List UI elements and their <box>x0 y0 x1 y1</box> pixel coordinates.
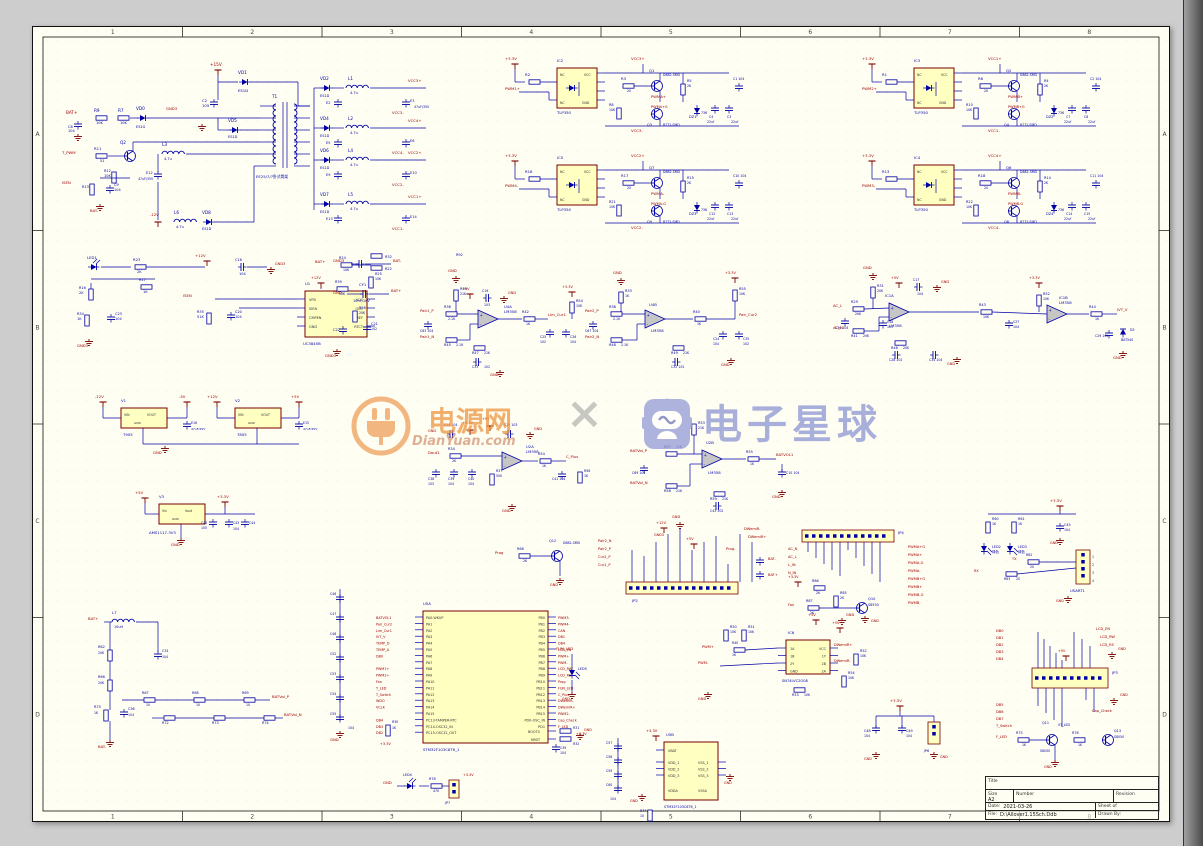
svg-text:R5: R5 <box>687 79 692 83</box>
svg-text:PA8: PA8 <box>426 667 432 671</box>
svg-text:C4: C4 <box>709 115 713 119</box>
svg-text:PWMB+G: PWMB+G <box>908 577 925 581</box>
svg-text:L2: L2 <box>348 116 353 121</box>
svg-text:1A: 1A <box>790 647 795 651</box>
svg-text:Cap_Check: Cap_Check <box>558 718 577 722</box>
svg-text:VD1: VD1 <box>238 70 247 75</box>
svg-text:L4: L4 <box>348 148 353 153</box>
svg-text:22uf: 22uf <box>707 217 715 221</box>
svg-text:PWMB+: PWMB+ <box>1008 94 1023 99</box>
svg-text:VFB: VFB <box>309 298 316 302</box>
svg-text:10K: 10K <box>966 205 973 209</box>
date-label: Date: <box>988 804 1000 809</box>
svg-text:VDDA: VDDA <box>668 789 678 793</box>
svg-text:EE25/7/7卧式骨架: EE25/7/7卧式骨架 <box>256 174 288 179</box>
svg-text:2K: 2K <box>452 459 457 463</box>
svg-text:C19: C19 <box>482 289 488 293</box>
svg-text:20K: 20K <box>359 311 366 315</box>
svg-text:PWM-: PWM- <box>558 661 568 665</box>
svg-text:VCC4-: VCC4- <box>988 225 1000 230</box>
svg-text:1K: 1K <box>1022 743 1027 747</box>
svg-text:VBAT: VBAT <box>668 749 678 753</box>
svg-text:NC: NC <box>917 198 922 202</box>
svg-text:TLP350: TLP350 <box>556 207 572 212</box>
svg-text:22uf: 22uf <box>731 217 739 221</box>
svg-text:VCC3-: VCC3- <box>631 128 643 133</box>
svg-text:LED3: LED3 <box>1018 545 1027 549</box>
svg-text:10K: 10K <box>96 121 103 125</box>
svg-text:GND: GND <box>172 517 180 521</box>
schematic-sheet[interactable]: 1122334455667788AABBCCDD+15VC2105VD1ES1D… <box>32 26 1170 822</box>
svg-text:PWM1+: PWM1+ <box>505 86 520 91</box>
svg-text:C23: C23 <box>115 312 122 316</box>
svg-text:10K: 10K <box>848 676 855 680</box>
svg-text:22uf: 22uf <box>1088 120 1096 124</box>
svg-text:ES1D: ES1D <box>228 135 238 139</box>
svg-text:GND: GND <box>309 325 317 329</box>
svg-text:C31: C31 <box>162 649 169 653</box>
svg-text:102: 102 <box>743 342 749 346</box>
svg-text:D: D <box>35 711 40 718</box>
svg-text:VCC2+: VCC2+ <box>631 153 645 158</box>
svg-text:1K: 1K <box>697 322 702 326</box>
svg-text:2B: 2B <box>822 662 827 666</box>
svg-text:R11: R11 <box>94 146 102 151</box>
svg-text:E2: E2 <box>326 101 330 105</box>
svg-text:R66: R66 <box>517 547 524 551</box>
svg-text:10: 10 <box>246 703 250 707</box>
svg-text:TLP350: TLP350 <box>913 207 929 212</box>
svg-text:R54: R54 <box>576 299 584 303</box>
svg-text:7: 7 <box>948 814 952 821</box>
svg-text:103: 103 <box>484 303 490 307</box>
svg-text:C10 104: C10 104 <box>786 471 799 475</box>
svg-text:PWMA+: PWMA+ <box>908 553 922 557</box>
svg-text:CMPEN: CMPEN <box>309 316 322 320</box>
svg-text:R23: R23 <box>133 257 141 262</box>
svg-text:736: 736 <box>1058 208 1064 212</box>
svg-text:BAT+: BAT+ <box>315 259 325 264</box>
svg-text:PD0-OSC_IN: PD0-OSC_IN <box>524 718 545 722</box>
svg-text:GND: GND <box>383 780 392 785</box>
svg-text:BATVOL1: BATVOL1 <box>776 452 794 457</box>
svg-text:+3.3V: +3.3V <box>862 56 874 61</box>
svg-text:7905: 7905 <box>123 432 133 437</box>
svg-text:BAT+: BAT+ <box>768 573 778 577</box>
title-block: Title SizeA2 Number Revision Date:2021-0… <box>985 776 1159 820</box>
svg-text:PC14-OSC32_IN: PC14-OSC32_IN <box>426 725 453 729</box>
svg-text:NC: NC <box>917 73 922 77</box>
svg-text:Pair2_N: Pair2_N <box>585 334 599 339</box>
svg-text:+3.3V: +3.3V <box>576 732 587 736</box>
svg-text:R30: R30 <box>392 720 398 724</box>
svg-text:R87: R87 <box>806 599 813 603</box>
svg-text:+3.3V: +3.3V <box>380 742 391 746</box>
svg-text:R68: R68 <box>192 691 199 695</box>
svg-text:R42: R42 <box>522 310 529 314</box>
svg-text:PA5: PA5 <box>426 648 432 652</box>
svg-text:绿色: 绿色 <box>1018 549 1025 554</box>
svg-text:PA1: PA1 <box>426 622 432 626</box>
svg-text:GND: GND <box>550 583 558 587</box>
svg-text:C: C <box>1162 518 1166 525</box>
svg-text:RX: RX <box>974 569 979 573</box>
svg-text:DZ1: DZ1 <box>689 115 696 119</box>
svg-text:VDD_1: VDD_1 <box>668 761 679 765</box>
revision-label: Revision <box>1116 792 1135 797</box>
svg-text:R22: R22 <box>385 267 392 271</box>
svg-text:D882-SMD: D882-SMD <box>663 170 680 174</box>
svg-text:VDD_3: VDD_3 <box>668 774 679 778</box>
svg-text:GND: GND <box>582 198 590 202</box>
svg-text:A: A <box>1162 131 1167 138</box>
svg-text:B772-SMD: B772-SMD <box>663 220 680 224</box>
svg-text:R59: R59 <box>710 497 717 501</box>
svg-text:U4B: U4B <box>649 302 657 307</box>
block-ldo-3v3: +5VV3VinVoutGNDAMS1117-3V3+3.3VC42105C43… <box>135 490 255 547</box>
svg-text:104: 104 <box>115 317 122 321</box>
svg-text:C45: C45 <box>1064 523 1071 527</box>
svg-text:Q1: Q1 <box>649 68 655 73</box>
svg-text:DB3: DB3 <box>376 725 383 729</box>
svg-text:PB9: PB9 <box>538 674 545 678</box>
svg-text:R52: R52 <box>860 649 867 653</box>
svg-text:1K: 1K <box>392 726 397 730</box>
svg-text:10: 10 <box>146 703 150 707</box>
svg-text:VCC3-: VCC3- <box>392 110 404 115</box>
svg-text:Fan: Fan <box>376 680 382 684</box>
svg-text:PWM3-: PWM3- <box>862 183 876 188</box>
block-temp-comparator: GNDC14 104+3.3V+5VC15 103GNDDout1R342KC3… <box>428 417 590 513</box>
svg-text:DWemiR+: DWemiR+ <box>834 643 852 647</box>
svg-text:22uf: 22uf <box>731 120 739 124</box>
svg-text:R34: R34 <box>77 312 85 316</box>
svg-text:Vin: Vin <box>162 509 167 513</box>
svg-text:PWM1+: PWM1+ <box>376 667 389 671</box>
svg-text:4: 4 <box>529 814 533 821</box>
svg-text:BAT+: BAT+ <box>88 616 98 621</box>
svg-text:GND: GND <box>846 613 854 617</box>
svg-text:R52: R52 <box>1043 292 1050 296</box>
svg-text:IC2: IC2 <box>557 58 564 63</box>
svg-text:GND: GND <box>562 697 570 701</box>
svg-text:PWMB-: PWMB- <box>1008 191 1022 196</box>
svg-text:4.7u: 4.7u <box>350 163 358 167</box>
svg-text:20K: 20K <box>877 289 884 293</box>
svg-text:R39: R39 <box>335 280 342 284</box>
svg-text:PA2: PA2 <box>426 629 432 633</box>
svg-text:PWM2-: PWM2- <box>558 712 570 716</box>
svg-text:21K: 21K <box>683 351 690 355</box>
svg-text:Cap_Check: Cap_Check <box>1092 709 1113 713</box>
svg-text:C67 104: C67 104 <box>585 329 598 333</box>
svg-text:20K: 20K <box>855 312 862 316</box>
svg-text:S8550: S8550 <box>868 603 879 607</box>
svg-text:PWM4-: PWM4- <box>505 183 519 188</box>
svg-text:10uH: 10uH <box>114 625 123 629</box>
svg-text:V1: V1 <box>121 398 127 403</box>
svg-text:LM358: LM358 <box>504 309 517 314</box>
svg-text:21K: 21K <box>460 292 467 296</box>
svg-text:VCC: VCC <box>584 170 591 174</box>
svg-text:PA11: PA11 <box>426 686 434 690</box>
svg-text:VD2: VD2 <box>320 76 329 81</box>
svg-text:1K: 1K <box>1018 522 1023 526</box>
svg-text:DB2: DB2 <box>996 643 1004 647</box>
svg-text:C63 104: C63 104 <box>420 329 433 333</box>
svg-text:GND: GND <box>1056 599 1064 603</box>
svg-text:C15: C15 <box>1084 212 1090 216</box>
svg-text:GND: GND <box>502 508 511 513</box>
svg-text:R13: R13 <box>82 185 89 189</box>
svg-text:5: 5 <box>669 29 673 36</box>
svg-text:IC4: IC4 <box>914 155 921 160</box>
svg-text:Pair2_P: Pair2_P <box>598 547 612 551</box>
svg-text:JP6: JP6 <box>923 749 929 753</box>
svg-text:E13: E13 <box>326 217 333 221</box>
svg-text:C2 104: C2 104 <box>1090 77 1101 81</box>
svg-text:VSS_1: VSS_1 <box>698 761 708 765</box>
svg-text:Pair1_N: Pair1_N <box>420 334 434 339</box>
svg-text:PA15: PA15 <box>426 712 434 716</box>
svg-text:PB3: PB3 <box>538 635 545 639</box>
svg-text:2: 2 <box>250 814 254 821</box>
svg-text:R77: R77 <box>640 809 646 813</box>
svg-text:ES1D: ES1D <box>202 227 212 231</box>
svg-text:+: + <box>704 453 707 458</box>
svg-text:S8050: S8050 <box>1040 749 1050 753</box>
svg-text:U5B: U5B <box>666 732 674 737</box>
svg-text:B: B <box>1162 324 1166 331</box>
svg-text:LED2: LED2 <box>992 545 1001 549</box>
svg-text:10K: 10K <box>104 174 111 178</box>
svg-text:R31: R31 <box>877 284 884 288</box>
svg-text:C48: C48 <box>330 632 336 636</box>
svg-text:FUN_LED: FUN_LED <box>558 686 574 690</box>
svg-text:R69: R69 <box>242 691 249 695</box>
svg-text:10K: 10K <box>966 108 973 112</box>
block-aux-caps-jumper: +3.3VC48104C49104JP6GNDGND <box>864 698 948 761</box>
svg-text:PB13: PB13 <box>536 699 545 703</box>
svg-text:8: 8 <box>1087 29 1091 36</box>
svg-text:+: + <box>1049 308 1052 313</box>
svg-text:F_LED: F_LED <box>996 735 1007 739</box>
svg-text:D882-SMD: D882-SMD <box>1020 170 1037 174</box>
svg-text:Q12: Q12 <box>549 539 556 543</box>
svg-text:C43: C43 <box>233 521 239 525</box>
svg-text:GND: GND <box>721 362 730 367</box>
svg-text:R58: R58 <box>664 489 671 493</box>
svg-text:C38: C38 <box>428 477 434 481</box>
svg-text:Cur1_P: Cur1_P <box>598 563 611 567</box>
svg-text:+12V: +12V <box>195 253 206 258</box>
svg-text:PWM+: PWM+ <box>702 645 714 649</box>
svg-text:R61: R61 <box>1018 517 1025 521</box>
svg-text:C42: C42 <box>201 521 207 525</box>
svg-text:C24: C24 <box>713 337 719 341</box>
svg-text:VD0: VD0 <box>136 106 145 111</box>
svg-text:BAT-: BAT- <box>393 258 402 263</box>
svg-text:+: + <box>891 306 894 311</box>
svg-text:R86: R86 <box>812 579 819 583</box>
svg-text:VOUT: VOUT <box>147 413 156 417</box>
svg-text:GND: GND <box>153 450 162 455</box>
svg-text:PA12: PA12 <box>426 693 434 697</box>
svg-text:4.7u: 4.7u <box>164 157 172 161</box>
window-edge <box>1183 0 1203 846</box>
svg-text:+3.3V: +3.3V <box>646 729 658 733</box>
svg-text:L3: L3 <box>162 142 167 147</box>
svg-text:BAT-: BAT- <box>98 744 107 749</box>
svg-text:D: D <box>1162 711 1167 718</box>
svg-text:R8: R8 <box>609 103 614 107</box>
svg-text:+12V: +12V <box>656 521 667 525</box>
svg-text:C48: C48 <box>864 729 871 733</box>
svg-text:+5V: +5V <box>291 394 300 399</box>
svg-text:R13: R13 <box>882 169 890 174</box>
svg-text:C26: C26 <box>570 335 576 339</box>
block-pwm-controller-uc3845: LED1R232K+12VC16104GND3R162KR171KR341KC2… <box>77 253 382 358</box>
block-gate-driver-b-low: +3.3VR13PWM3-IC4TLP350NCVCCNCGNDVCC4+R18… <box>862 153 1103 230</box>
svg-text:GND: GND <box>941 280 949 284</box>
svg-text:104: 104 <box>114 188 121 192</box>
svg-text:GND: GND <box>248 421 256 425</box>
svg-text:R7: R7 <box>118 108 124 113</box>
svg-text:C: C <box>35 518 39 525</box>
svg-text:E16: E16 <box>191 421 197 425</box>
svg-text:105: 105 <box>202 103 210 108</box>
svg-text:-12V: -12V <box>95 394 104 399</box>
svg-text:WDO: WDO <box>376 699 385 703</box>
svg-text:R21: R21 <box>609 200 616 204</box>
svg-text:Q6: Q6 <box>1006 165 1012 170</box>
svg-text:C55: C55 <box>330 712 336 716</box>
svg-text:R49: R49 <box>671 351 678 355</box>
svg-text:22uf: 22uf <box>707 120 715 124</box>
svg-text:C7: C7 <box>1066 115 1070 119</box>
svg-text:+3.3V: +3.3V <box>505 56 517 61</box>
svg-text:C1 104: C1 104 <box>733 77 744 81</box>
svg-text:PD1: PD1 <box>538 725 545 729</box>
svg-text:10K: 10K <box>576 304 583 308</box>
svg-text:+: + <box>647 313 650 318</box>
date-value: 2021-03-26 <box>1003 804 1032 810</box>
svg-text:R37: R37 <box>496 469 502 473</box>
svg-text:R60: R60 <box>992 517 999 521</box>
svg-text:+5V: +5V <box>1058 649 1066 653</box>
svg-text:R9: R9 <box>94 108 100 113</box>
svg-text:C15 103: C15 103 <box>504 423 517 427</box>
svg-text:NC: NC <box>560 101 565 105</box>
svg-text:R55: R55 <box>739 287 746 291</box>
svg-text:C14: C14 <box>1066 212 1072 216</box>
svg-text:10K: 10K <box>609 205 616 209</box>
svg-text:-5V: -5V <box>179 394 186 399</box>
svg-text:T_Switch: T_Switch <box>995 724 1012 728</box>
block-ac-sense-amp: GNDR3120KAC_LR2920KC36 104AC_NR4120KC181… <box>833 265 1134 366</box>
svg-text:Pair1_P: Pair1_P <box>420 308 434 313</box>
block-battery-divider: BAT+L710uHR6220KC31104R6620KR701KC36104R… <box>88 610 302 749</box>
svg-text:PWM4-: PWM4- <box>558 622 570 626</box>
svg-text:GND: GND <box>863 265 872 270</box>
svg-text:Pair2_P: Pair2_P <box>585 308 599 313</box>
svg-text:C53: C53 <box>330 672 336 676</box>
svg-text:10K: 10K <box>730 630 737 634</box>
svg-text:E6: E6 <box>410 139 414 143</box>
block-flyback-converter: +15VC2105VD1ES1DGND3BAT+C8104R910KR710KV… <box>61 62 463 257</box>
svg-text:104: 104 <box>239 272 246 276</box>
svg-text:C39: C39 <box>448 477 454 481</box>
svg-text:ES1D: ES1D <box>320 94 330 98</box>
svg-text:20: 20 <box>984 89 988 93</box>
svg-text:VD5: VD5 <box>228 118 237 123</box>
svg-text:GND3: GND3 <box>654 533 664 537</box>
svg-text:NC: NC <box>917 170 922 174</box>
svg-text:R31: R31 <box>573 726 579 730</box>
svg-text:C28 102: C28 102 <box>889 358 902 362</box>
block-lcd-header: DB0DB1DB2DB3DB4LCD_ENLCD_RWLCD_RS+5VGNDJ… <box>995 627 1128 769</box>
svg-text:R34: R34 <box>448 447 456 451</box>
svg-text:GND: GND <box>333 290 342 295</box>
svg-text:Pair_Cur2: Pair_Cur2 <box>739 312 758 317</box>
svg-text:C3: C3 <box>727 115 731 119</box>
svg-text:R66: R66 <box>98 675 105 679</box>
svg-text:IVT_V: IVT_V <box>1117 307 1128 312</box>
svg-text:R16: R16 <box>79 286 86 290</box>
svg-text:+5V: +5V <box>482 417 490 421</box>
svg-text:47uF/35V: 47uF/35V <box>138 177 154 181</box>
svg-text:R25: R25 <box>375 272 382 276</box>
svg-text:R18: R18 <box>978 173 986 178</box>
svg-text:+5V: +5V <box>135 490 144 495</box>
svg-text:T_Switch: T_Switch <box>375 693 391 697</box>
svg-text:R1: R1 <box>882 72 888 77</box>
svg-text:104: 104 <box>348 726 354 730</box>
svg-text:R36: R36 <box>444 305 451 309</box>
svg-text:LM358: LM358 <box>889 323 902 328</box>
svg-text:D882-SMD: D882-SMD <box>663 73 680 77</box>
svg-text:PWM2+: PWM2+ <box>862 86 877 91</box>
svg-text:LCD_EN: LCD_EN <box>1096 627 1110 631</box>
svg-text:+3.3V: +3.3V <box>217 494 229 499</box>
block-batvol-amp: R5321KBATVol_PR5721KC69 104BATVol_NR5821… <box>630 421 799 513</box>
svg-text:VCC4+: VCC4+ <box>408 118 422 123</box>
svg-text:+3.3V: +3.3V <box>788 575 799 579</box>
svg-text:20: 20 <box>627 186 631 190</box>
svg-text:VCC3+: VCC3+ <box>631 56 645 61</box>
svg-text:C35: C35 <box>743 337 749 341</box>
svg-text:Q4: Q4 <box>1004 123 1010 127</box>
svg-text:ES1G: ES1G <box>136 125 146 129</box>
svg-text:10K: 10K <box>748 630 755 634</box>
svg-text:C36: C36 <box>128 707 135 711</box>
svg-text:+3.3V: +3.3V <box>463 773 474 777</box>
svg-text:21K: 21K <box>676 489 683 493</box>
svg-text:VOUT: VOUT <box>261 413 270 417</box>
svg-text:DB3: DB3 <box>996 650 1004 654</box>
svg-text:R33: R33 <box>625 289 632 293</box>
svg-text:Q7: Q7 <box>649 165 655 170</box>
block-jp2-header: Pair2_NPair2_PCur2_PCur1_P+12VGNDGND3+5V… <box>598 515 778 603</box>
svg-text:PWMA-: PWMA- <box>908 569 921 573</box>
svg-text:DB1: DB1 <box>996 636 1004 640</box>
svg-text:GND: GND <box>940 755 948 759</box>
svg-text:104: 104 <box>235 315 242 319</box>
svg-text:绿色: 绿色 <box>992 549 999 554</box>
svg-text:PWMA+G: PWMA+G <box>651 105 668 109</box>
svg-text:R12: R12 <box>104 169 111 173</box>
svg-text:E14: E14 <box>410 215 417 219</box>
